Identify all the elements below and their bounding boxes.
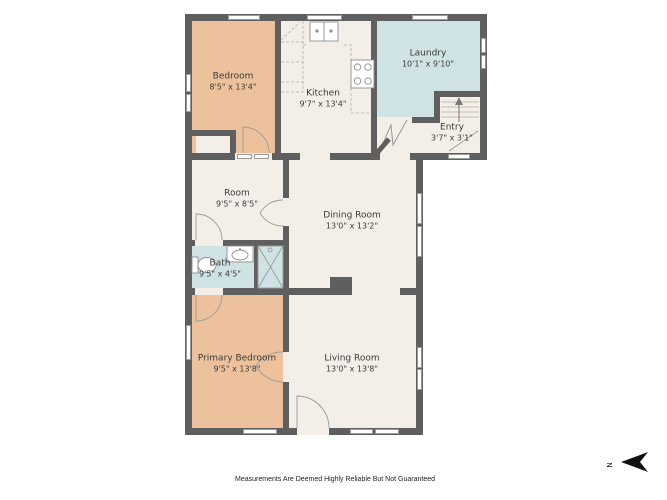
door-frame-slat xyxy=(237,154,252,159)
wall-room-bath-a xyxy=(185,240,195,246)
wall-bedroom-kitchen xyxy=(275,14,281,160)
wall-stairs-top xyxy=(434,91,487,97)
window xyxy=(481,55,486,69)
room-label-dining-room: Dining Room 13'0" x 13'2" xyxy=(323,210,381,233)
window xyxy=(448,154,470,159)
wall-exterior-bottom-left xyxy=(185,428,297,435)
wall-bath-shower xyxy=(254,246,258,288)
window xyxy=(350,429,373,434)
wall-center-a xyxy=(283,160,289,198)
shower-fill xyxy=(258,246,283,288)
wall-dining-living-b xyxy=(400,288,416,295)
room-name: Room xyxy=(216,188,258,200)
window xyxy=(375,429,399,434)
room-label-laundry: Laundry 10'1" x 9'10" xyxy=(402,48,454,71)
room-dims: 8'5" x 13'4" xyxy=(209,83,256,94)
room-dims: 13'0" x 13'8" xyxy=(324,365,379,376)
chimney-block xyxy=(330,277,352,295)
window xyxy=(186,325,191,360)
room-dims: 9'7" x 13'4" xyxy=(299,100,346,111)
closet-fill xyxy=(196,136,232,153)
wall-exterior-right-upper xyxy=(480,14,487,160)
room-label-room: Room 9'5" x 8'5" xyxy=(216,188,258,211)
wall-mid-divider-d xyxy=(410,153,416,160)
room-label-bath: Bath 9'5" x 4'5" xyxy=(199,258,241,281)
wall-mid-divider-a xyxy=(185,153,235,160)
room-name: Bedroom xyxy=(209,71,256,83)
room-name: Primary Bedroom xyxy=(198,353,276,365)
wall-mid-divider-b xyxy=(272,153,300,160)
room-dims: 13'0" x 13'2" xyxy=(323,222,381,233)
window xyxy=(417,226,422,257)
window xyxy=(417,347,422,368)
room-name: Kitchen xyxy=(299,88,346,100)
window xyxy=(186,74,191,92)
room-label-bedroom: Bedroom 8'5" x 13'4" xyxy=(209,71,256,94)
wall-center-c xyxy=(283,382,289,428)
window xyxy=(186,94,191,112)
window xyxy=(307,15,342,20)
room-name: Living Room xyxy=(324,353,379,365)
window xyxy=(417,369,422,390)
window xyxy=(243,429,277,434)
window xyxy=(481,38,486,53)
doorway-gap xyxy=(380,153,410,160)
room-label-kitchen: Kitchen 9'7" x 13'4" xyxy=(299,88,346,111)
room-label-primary-bedroom: Primary Bedroom 9'5" x 13'8" xyxy=(198,353,276,376)
room-dims: 9'5" x 8'5" xyxy=(216,200,258,211)
room-dims: 3'7" x 3'1" xyxy=(431,134,473,145)
room-name: Laundry xyxy=(402,48,454,60)
room-dims: 10'1" x 9'10" xyxy=(402,60,454,71)
room-name: Bath xyxy=(199,258,241,270)
floorplan-canvas: N Bedroom 8'5" x 13'4" Kitchen 9'7" x 13… xyxy=(0,0,667,500)
doorway-gap xyxy=(297,428,329,435)
wall-closet-right xyxy=(230,130,236,153)
disclaimer-text: Measurements Are Deemed Highly Reliable … xyxy=(185,476,485,483)
wall-mid-divider-c xyxy=(330,153,380,160)
compass-icon: N xyxy=(606,452,648,472)
room-fill-laundry-lower xyxy=(377,91,434,117)
wall-bath-primary-a xyxy=(185,288,195,295)
window xyxy=(417,193,422,224)
room-dims: 9'5" x 13'8" xyxy=(198,365,276,376)
wall-bath-primary-b xyxy=(223,288,285,295)
room-label-living-room: Living Room 13'0" x 13'8" xyxy=(324,353,379,376)
room-name: Entry xyxy=(431,122,473,134)
wall-kitchen-laundry xyxy=(371,14,377,160)
door-frame-slat xyxy=(254,154,269,159)
window xyxy=(228,15,260,20)
room-label-entry: Entry 3'7" x 3'1" xyxy=(431,122,473,145)
doorway-gap xyxy=(300,153,330,160)
room-dims: 9'5" x 4'5" xyxy=(199,270,241,281)
compass-label: N xyxy=(606,462,614,467)
window xyxy=(412,15,448,20)
wall-dining-living-a xyxy=(289,288,330,295)
room-name: Dining Room xyxy=(323,210,381,222)
